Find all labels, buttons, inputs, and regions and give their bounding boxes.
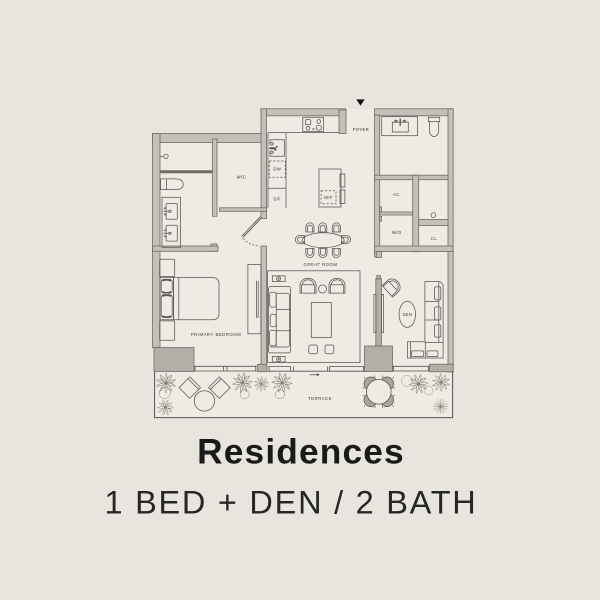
svg-text:Residences: Residences — [197, 433, 405, 472]
svg-text:GREAT ROOM: GREAT ROOM — [304, 262, 338, 267]
svg-text:CL: CL — [431, 236, 438, 241]
svg-text:FOYER: FOYER — [353, 127, 369, 132]
svg-text:W/F: W/F — [324, 195, 333, 200]
svg-text:TERRACE: TERRACE — [308, 396, 332, 401]
svg-text:DW: DW — [273, 167, 281, 172]
svg-text:1 BED + DEN / 2 BATH: 1 BED + DEN / 2 BATH — [104, 485, 477, 521]
svg-text:W/D: W/D — [392, 230, 402, 235]
svg-text:PRIMARY BEDROOM: PRIMARY BEDROOM — [191, 332, 241, 337]
svg-text:S/F: S/F — [273, 196, 281, 201]
svg-text:W/C: W/C — [237, 174, 247, 179]
svg-text:DEN: DEN — [403, 312, 412, 317]
svg-text:AC: AC — [393, 192, 400, 197]
